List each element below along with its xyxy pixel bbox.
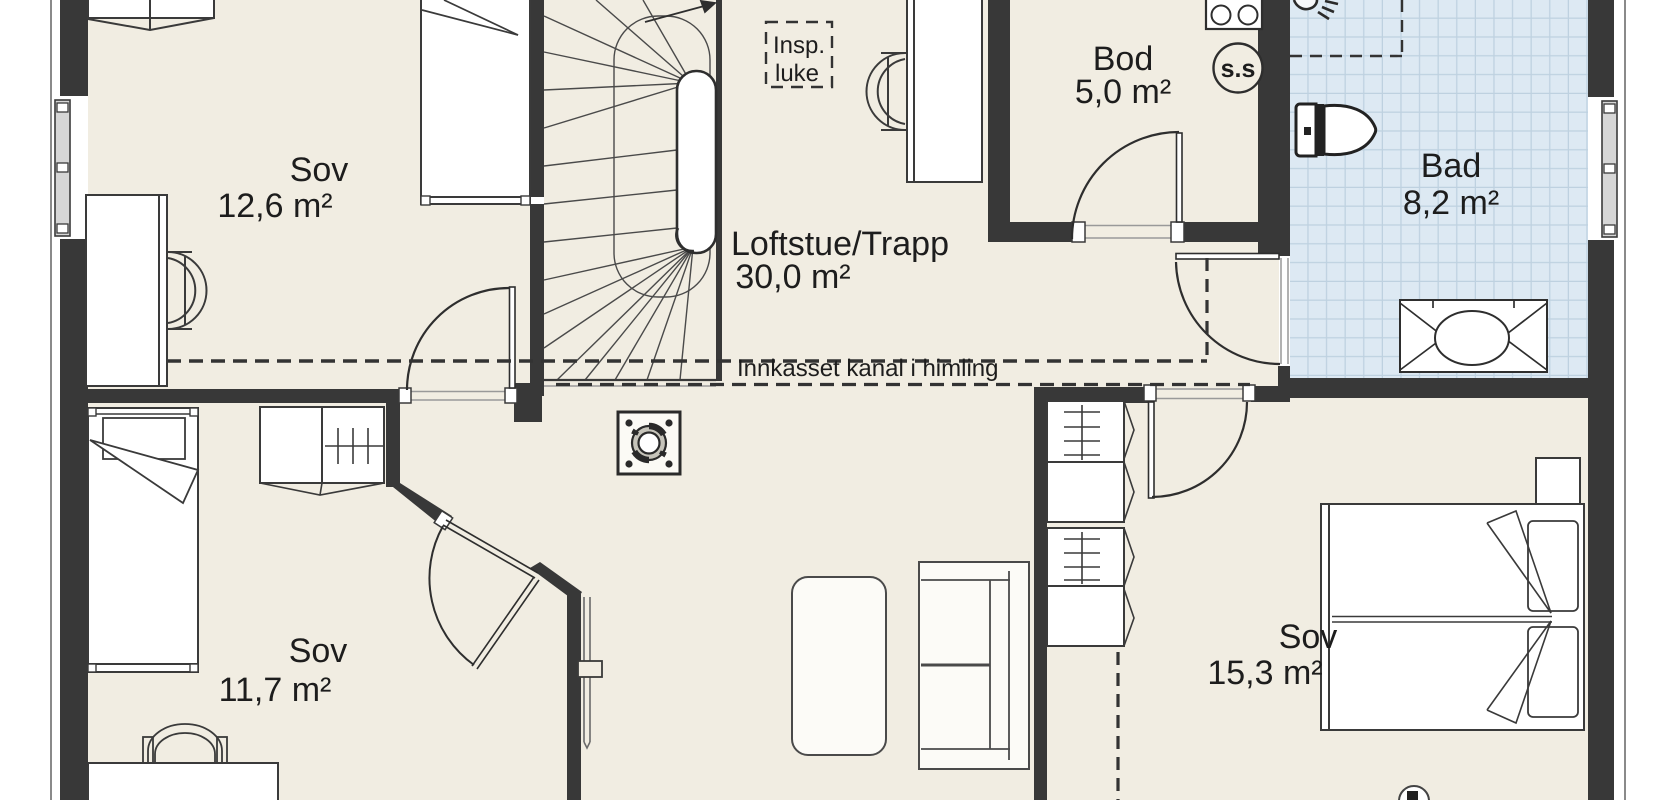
svg-text:Sov: Sov — [290, 151, 349, 189]
svg-text:30,0 m²: 30,0 m² — [735, 258, 850, 296]
svg-text:Sov: Sov — [289, 632, 348, 670]
svg-text:Bad: Bad — [1421, 147, 1482, 185]
svg-text:s.s: s.s — [1221, 55, 1256, 83]
svg-text:luke: luke — [775, 60, 819, 87]
svg-text:Insp.: Insp. — [773, 32, 825, 59]
svg-text:8,2 m²: 8,2 m² — [1403, 184, 1499, 222]
svg-text:12,6 m²: 12,6 m² — [217, 187, 332, 225]
svg-text:Sov: Sov — [1279, 618, 1338, 656]
svg-text:5,0 m²: 5,0 m² — [1075, 73, 1171, 111]
svg-text:Innkasset kanal i himling: Innkasset kanal i himling — [737, 355, 998, 382]
svg-text:15,3 m²: 15,3 m² — [1207, 654, 1322, 692]
svg-text:11,7 m²: 11,7 m² — [219, 671, 332, 709]
